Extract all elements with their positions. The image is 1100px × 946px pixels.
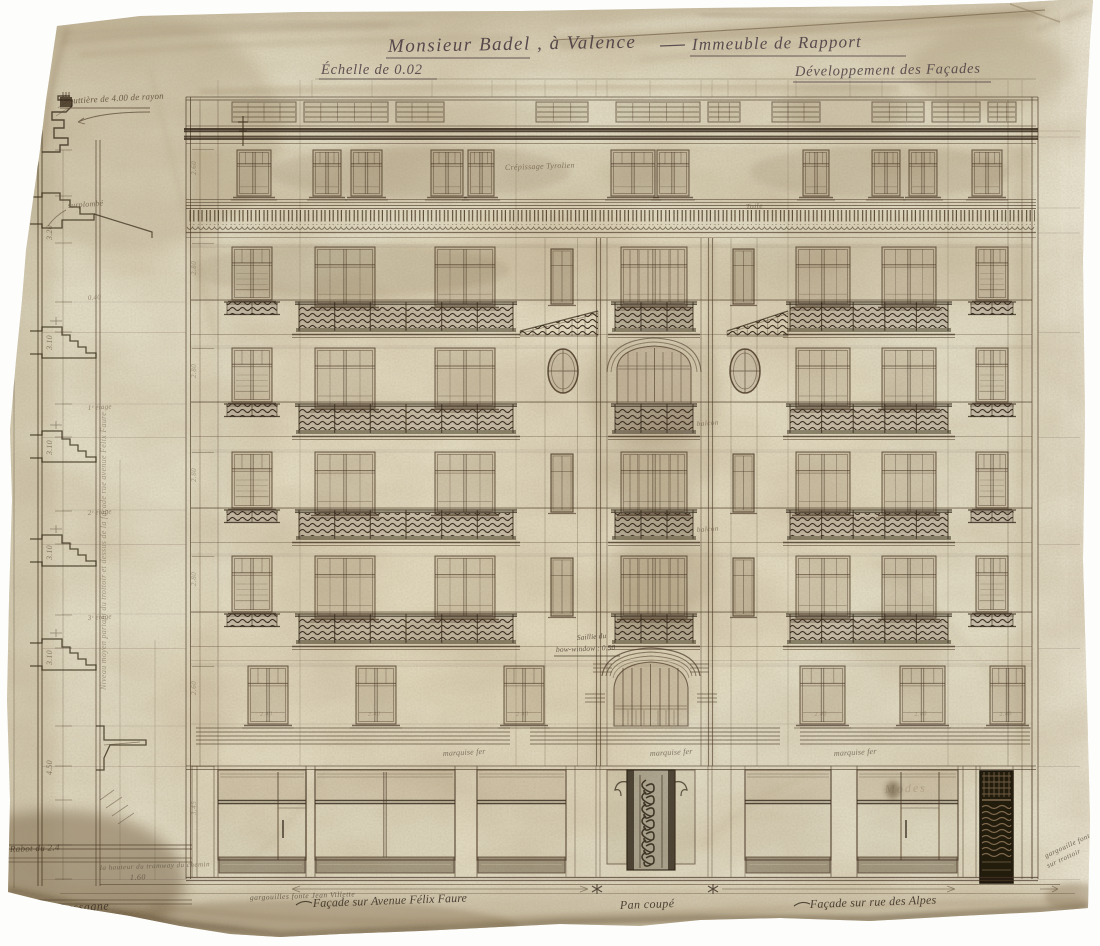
svg-text:Échelle de 0.02: Échelle de 0.02: [320, 61, 423, 78]
svg-text:Niveau moyen partant du trotto: Niveau moyen partant du trottoir et dess…: [99, 412, 108, 691]
svg-text:balcon: balcon: [697, 418, 720, 428]
svg-text:4.50: 4.50: [45, 760, 54, 775]
svg-text:2.40: 2.40: [516, 710, 529, 718]
svg-text:2.80: 2.80: [190, 364, 198, 378]
svg-text:Pan coupé: Pan coupé: [619, 896, 675, 912]
svg-text:1.60: 1.60: [130, 872, 146, 882]
svg-text:Développement des Façades: Développement des Façades: [794, 61, 981, 80]
svg-text:Immeuble de Rapport: Immeuble de Rapport: [691, 32, 862, 54]
svg-text:Rabot du 2.4: Rabot du 2.4: [9, 842, 60, 854]
svg-text:Toile: Toile: [746, 201, 764, 211]
svg-text:2ᵉ étage: 2ᵉ étage: [88, 507, 112, 517]
svg-text:2.80: 2.80: [190, 468, 198, 482]
svg-text:3.45: 3.45: [190, 801, 198, 816]
svg-text:2.40: 2.40: [814, 710, 827, 718]
svg-text:3.10: 3.10: [45, 545, 54, 561]
svg-text:2.80: 2.80: [190, 572, 198, 586]
svg-text:3.10: 3.10: [45, 650, 54, 666]
svg-text:0.40: 0.40: [88, 293, 102, 302]
svg-text:2.60: 2.60: [190, 681, 198, 695]
svg-text:3.10: 3.10: [45, 440, 54, 456]
svg-text:Monsieur Badel , à Valence: Monsieur Badel , à Valence: [387, 32, 637, 57]
svg-text:balcon: balcon: [697, 524, 720, 534]
svg-text:2.40: 2.40: [914, 710, 927, 718]
svg-text:2.40: 2.40: [999, 710, 1012, 718]
svg-text:2.40: 2.40: [260, 710, 273, 718]
svg-text:3.20: 3.20: [45, 225, 54, 241]
svg-text:2.80: 2.80: [190, 261, 198, 275]
svg-text:3.10: 3.10: [45, 335, 54, 351]
svg-text:2.60: 2.60: [190, 161, 198, 175]
svg-text:Modes: Modes: [884, 781, 927, 796]
svg-text:2.40: 2.40: [368, 710, 381, 718]
